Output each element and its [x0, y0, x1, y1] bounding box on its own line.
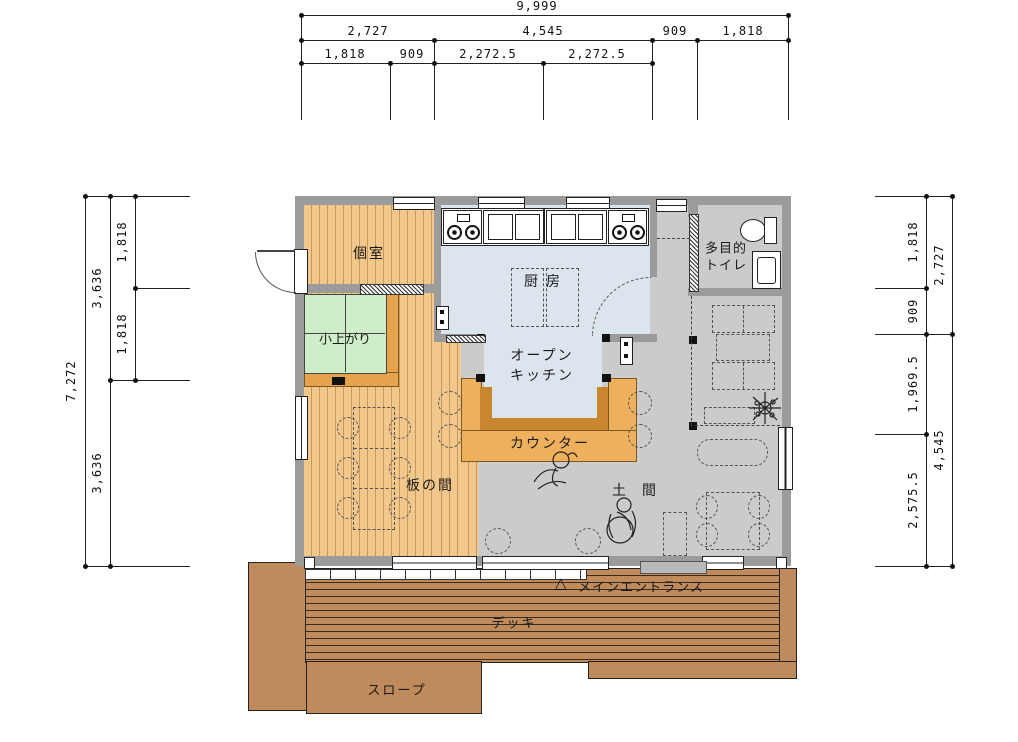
- plant-icon: [748, 390, 782, 426]
- sliding-door-toilet: [689, 214, 699, 292]
- dim-ext-line: [875, 434, 926, 435]
- fixture-mark: [440, 310, 444, 314]
- entrance-bench: [663, 512, 687, 556]
- stove-right: [608, 210, 647, 244]
- entrance-triangle-icon: △: [555, 574, 567, 592]
- slope-label: スロープ: [367, 680, 426, 699]
- dim-ext-line: [135, 288, 190, 289]
- stove-vent: [622, 214, 635, 222]
- counter-inner-right: [597, 387, 608, 430]
- dim-dot: [650, 38, 655, 43]
- deck-bottom-strip: [588, 661, 797, 679]
- room-label-doma: 土 間: [612, 480, 662, 500]
- low-table: [716, 334, 770, 361]
- entry-door-leaf: [294, 249, 308, 294]
- floor-plan-drawing: 個室 小上がり 厨 房 オープン キッチン カウンター 板の間 土 間 多目的 …: [0, 0, 1018, 742]
- entrance-step: [640, 561, 707, 574]
- chair: [389, 497, 411, 519]
- dim-left: 3,636: [90, 452, 104, 493]
- fixture-mark: [624, 354, 628, 358]
- guide-line: [691, 296, 692, 426]
- stool: [485, 528, 511, 554]
- sliding-door-koshitsu: [360, 284, 424, 295]
- dim-dot: [133, 286, 138, 291]
- dim-ext-line: [543, 63, 544, 120]
- sink-basin: [488, 214, 513, 240]
- dim-line: [301, 40, 788, 41]
- dim-dot: [108, 378, 113, 383]
- wall-kitchen-right: [650, 205, 657, 277]
- dim-line: [952, 196, 953, 566]
- counter-post-right: [602, 374, 611, 382]
- dim-left-total: 7,272: [64, 360, 78, 401]
- itanoma-floor-ext1: [434, 341, 461, 556]
- dim-dot: [541, 61, 546, 66]
- wall-outer-right: [782, 196, 791, 566]
- room-label-kitchen: 厨 房: [524, 271, 562, 291]
- dim-dot: [950, 194, 955, 199]
- dim-dot: [299, 13, 304, 18]
- dim-dot: [133, 378, 138, 383]
- dim-dot: [924, 432, 929, 437]
- dim-line: [926, 196, 927, 566]
- dim-dot: [786, 38, 791, 43]
- dim-left: 3,636: [90, 267, 104, 308]
- entry-door-arc: [255, 252, 296, 293]
- toilet-sink: [752, 251, 781, 289]
- dim-top: 2,272.5: [568, 47, 626, 61]
- dim-top-total: 9,999: [516, 0, 557, 13]
- dim-left: 1,818: [115, 221, 129, 262]
- wheelchair-person-sketch: [602, 496, 644, 548]
- wall-outer-top: [295, 196, 791, 205]
- table-divider: [354, 488, 394, 489]
- dim-dot: [924, 194, 929, 199]
- room-label-open-kitchen-1: オープン: [510, 345, 573, 365]
- dim-top: 4,545: [522, 24, 563, 38]
- dim-right-outer: 4,545: [932, 429, 946, 470]
- dim-dot: [924, 286, 929, 291]
- window-bottom-1: [392, 556, 477, 570]
- window-bottom-tick-l: [304, 557, 315, 569]
- dim-dot: [83, 194, 88, 199]
- dim-dot: [950, 564, 955, 569]
- window-top-4: [656, 199, 687, 212]
- room-label-itanoma: 板の間: [406, 475, 454, 495]
- dim-ext-line: [875, 566, 952, 567]
- dim-ext-line: [301, 15, 302, 120]
- stool: [575, 528, 601, 554]
- toilet-sink-basin: [757, 257, 776, 284]
- window-bottom-2: [482, 556, 609, 570]
- ramp-left: [248, 562, 308, 711]
- dim-ext-line: [875, 288, 926, 289]
- sliding-door-kitchen: [446, 335, 486, 343]
- dim-ext-line: [875, 334, 952, 335]
- burner-icon: [447, 225, 462, 240]
- dim-dot: [108, 194, 113, 199]
- dim-dot: [924, 332, 929, 337]
- dim-dot: [108, 564, 113, 569]
- sink-cabinet-right: [546, 210, 607, 244]
- burner-icon: [630, 225, 645, 240]
- table-divider: [354, 448, 394, 449]
- stool: [438, 391, 462, 415]
- dim-dot: [83, 564, 88, 569]
- dim-top: 2,272.5: [459, 47, 517, 61]
- dim-right: 1,969.5: [906, 355, 920, 413]
- deck-label: デッキ: [491, 613, 536, 632]
- dim-ext-line: [652, 40, 653, 120]
- chair: [696, 523, 718, 547]
- dim-ext-line: [697, 40, 698, 120]
- chair: [748, 495, 770, 519]
- chair: [748, 523, 770, 547]
- dim-ext-line: [875, 196, 952, 197]
- window-top-1: [393, 197, 435, 210]
- sofa: [712, 305, 775, 333]
- sink-cabinet-left: [483, 210, 544, 244]
- deck-step-strip: [305, 569, 587, 580]
- dim-ext-line: [434, 40, 435, 120]
- dim-dot: [950, 332, 955, 337]
- dim-left: 1,818: [115, 313, 129, 354]
- sofa: [712, 362, 775, 390]
- sink-basin: [515, 214, 540, 240]
- chair: [389, 417, 411, 439]
- dim-right: 2,575.5: [906, 471, 920, 529]
- dim-top: 909: [663, 24, 688, 38]
- deck-area: [305, 568, 781, 663]
- dim-line: [85, 196, 86, 566]
- dim-ext-line: [110, 380, 190, 381]
- window-bottom-3: [702, 556, 744, 570]
- dim-dot: [432, 61, 437, 66]
- dim-line: [301, 15, 788, 16]
- chair: [337, 457, 359, 479]
- room-label-open-kitchen-2: キッチン: [510, 365, 574, 385]
- dim-dot: [388, 61, 393, 66]
- toilet-tank: [764, 217, 777, 244]
- room-label-koshitsu: 個室: [353, 243, 385, 263]
- fixture-mark: [440, 320, 444, 324]
- oval-table: [697, 439, 768, 466]
- counter-post-left: [476, 374, 485, 382]
- entrance-label: メインエントランス: [578, 577, 704, 596]
- stool: [438, 424, 462, 448]
- room-label-toilet-2: トイレ: [705, 255, 747, 274]
- itanoma-floor-ext2: [461, 460, 478, 556]
- dim-right: 1,818: [906, 221, 920, 262]
- guide-line: [657, 238, 690, 239]
- dim-top: 909: [400, 47, 425, 61]
- fixture-mark: [624, 342, 628, 346]
- dim-top: 2,727: [347, 24, 388, 38]
- dim-ext-line: [85, 566, 190, 567]
- sofa-divider: [743, 363, 744, 389]
- chair: [696, 495, 718, 519]
- dim-ext-line: [390, 63, 391, 120]
- chair: [337, 417, 359, 439]
- dim-dot: [432, 38, 437, 43]
- dim-ext-line: [788, 15, 789, 120]
- chair: [337, 497, 359, 519]
- dim-dot: [133, 194, 138, 199]
- stool: [628, 424, 652, 448]
- kitchen-wall-fixture: [436, 306, 449, 330]
- kitchen-center-divider: [543, 208, 545, 244]
- sink-basin: [551, 214, 576, 240]
- dim-top: 1,818: [324, 47, 365, 61]
- dim-dot: [786, 13, 791, 18]
- window-bottom-tick-r: [776, 557, 787, 569]
- burner-icon: [465, 225, 480, 240]
- counter-arm-fixture: [620, 337, 633, 365]
- room-label-koagari: 小上がり: [319, 329, 371, 348]
- dim-dot: [695, 38, 700, 43]
- room-label-counter: カウンター: [510, 433, 590, 453]
- dim-right: 909: [906, 299, 920, 324]
- sofa-divider: [743, 306, 744, 332]
- koagari-step-block: [332, 377, 345, 385]
- dim-top: 1,818: [722, 24, 763, 38]
- window-left: [295, 396, 308, 460]
- dim-dot: [299, 61, 304, 66]
- stool: [628, 391, 652, 415]
- counter-inner-bottom: [480, 418, 608, 430]
- person-sketch: [528, 448, 580, 492]
- dim-dot: [924, 564, 929, 569]
- dim-line: [301, 63, 652, 64]
- sink-basin: [578, 214, 603, 240]
- dim-dot: [299, 38, 304, 43]
- dim-dot: [650, 61, 655, 66]
- window-right: [778, 427, 793, 490]
- wall-toilet-bottom: [688, 288, 782, 296]
- stove-vent: [457, 214, 470, 222]
- stove-left: [443, 210, 482, 244]
- dim-right-outer: 2,727: [932, 244, 946, 285]
- burner-icon: [612, 225, 627, 240]
- koagari-step-bottom: [304, 372, 399, 387]
